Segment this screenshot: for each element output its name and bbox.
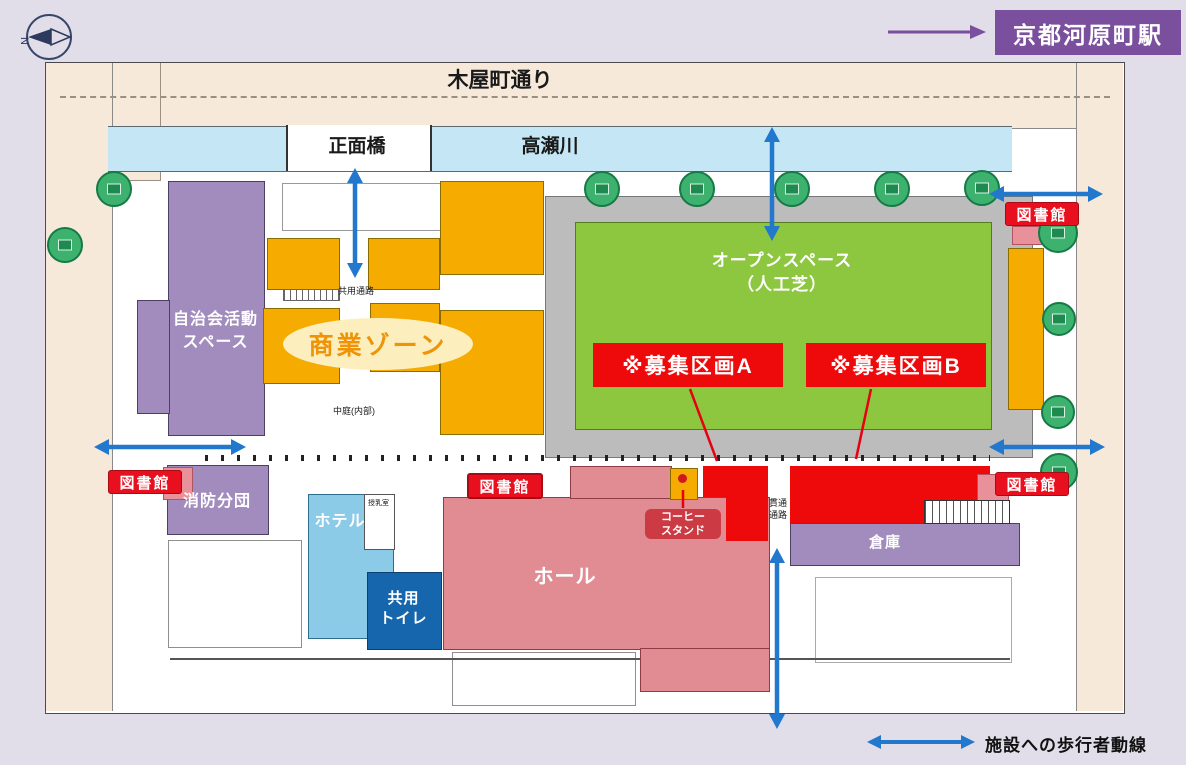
library-badge-center: 図書館 bbox=[467, 473, 543, 499]
street-right bbox=[1076, 63, 1123, 711]
stairs-graphic bbox=[924, 500, 1010, 524]
tree-icon bbox=[679, 171, 715, 207]
river-label: 高瀬川 bbox=[490, 136, 610, 159]
commercial-block-east bbox=[1008, 248, 1044, 410]
plan-lines bbox=[815, 577, 1012, 663]
nursing-room-label: 授乳室 bbox=[364, 500, 393, 508]
fire-brigade-label: 消防分団 bbox=[167, 492, 267, 512]
tree-icon bbox=[47, 227, 83, 263]
tree-icon bbox=[1041, 395, 1075, 429]
coffee-label-2: スタンド bbox=[661, 525, 705, 537]
commercial-zone-label: 商業ゾーン bbox=[283, 318, 473, 370]
facade-ticks bbox=[445, 455, 990, 461]
commercial-block bbox=[440, 181, 544, 275]
tree-icon bbox=[874, 171, 910, 207]
compass-icon: N bbox=[18, 8, 76, 66]
building-hall-annex bbox=[640, 648, 770, 692]
warehouse-label: 倉庫 bbox=[810, 534, 960, 553]
street-top-label: 木屋町通り bbox=[380, 68, 620, 93]
shared-passage-label: 共用通路 bbox=[320, 286, 392, 297]
facade-ticks bbox=[205, 455, 440, 461]
courtyard-label: 中庭(内部) bbox=[318, 406, 390, 417]
library-badge-west: 図書館 bbox=[108, 470, 182, 494]
station-label: 京都河原町駅 bbox=[995, 10, 1181, 55]
plan-lines bbox=[452, 652, 636, 706]
through-passage-label: 貫通通路 bbox=[766, 498, 790, 521]
street-left bbox=[46, 63, 113, 711]
tree-icon bbox=[96, 171, 132, 207]
zone-b-callout: ※募集区画B bbox=[806, 343, 986, 387]
coffee-label-1: コーヒー bbox=[661, 511, 705, 523]
coffee-stand-dot bbox=[678, 474, 687, 483]
jichikai-label-1: 自治会活動 bbox=[158, 310, 273, 330]
zone-a-callout: ※募集区画A bbox=[593, 343, 783, 387]
coffee-stand-booth bbox=[670, 468, 698, 500]
jichikai-label-2: スペース bbox=[158, 333, 273, 353]
bridge-label: 正面橋 bbox=[286, 136, 428, 159]
library-badge-east: 図書館 bbox=[995, 472, 1069, 496]
zone-a-area bbox=[703, 466, 768, 497]
building-jichikai bbox=[168, 181, 265, 436]
plan-lines bbox=[168, 540, 302, 648]
toilet-label-1: 共用 bbox=[367, 590, 440, 609]
zone-a-area-lower bbox=[726, 497, 768, 541]
tree-icon bbox=[964, 170, 1000, 206]
road-centerline bbox=[60, 96, 1110, 98]
open-space-label-2: （人工芝） bbox=[672, 274, 892, 295]
station-direction-arrow bbox=[888, 25, 986, 39]
commercial-block bbox=[267, 238, 340, 290]
commercial-block bbox=[368, 238, 440, 290]
building-hall-north bbox=[570, 466, 672, 499]
hall-label: ホール bbox=[505, 565, 625, 590]
commercial-zone-ellipse: 商業ゾーン bbox=[283, 318, 473, 370]
tree-icon bbox=[1042, 302, 1076, 336]
open-space-label-1: オープンスペース bbox=[672, 250, 892, 271]
toilet-label-2: トイレ bbox=[367, 610, 440, 629]
compass-letter: N bbox=[18, 37, 30, 45]
tree-icon bbox=[774, 171, 810, 207]
legend-label: 施設への歩行者動線 bbox=[985, 731, 1147, 756]
hotel-label: ホテル bbox=[306, 512, 374, 532]
site-boundary-line bbox=[170, 658, 1010, 660]
library-badge-northeast: 図書館 bbox=[1005, 202, 1079, 226]
tree-icon bbox=[584, 171, 620, 207]
coffee-stand-callout: コーヒー スタンド bbox=[645, 509, 721, 539]
